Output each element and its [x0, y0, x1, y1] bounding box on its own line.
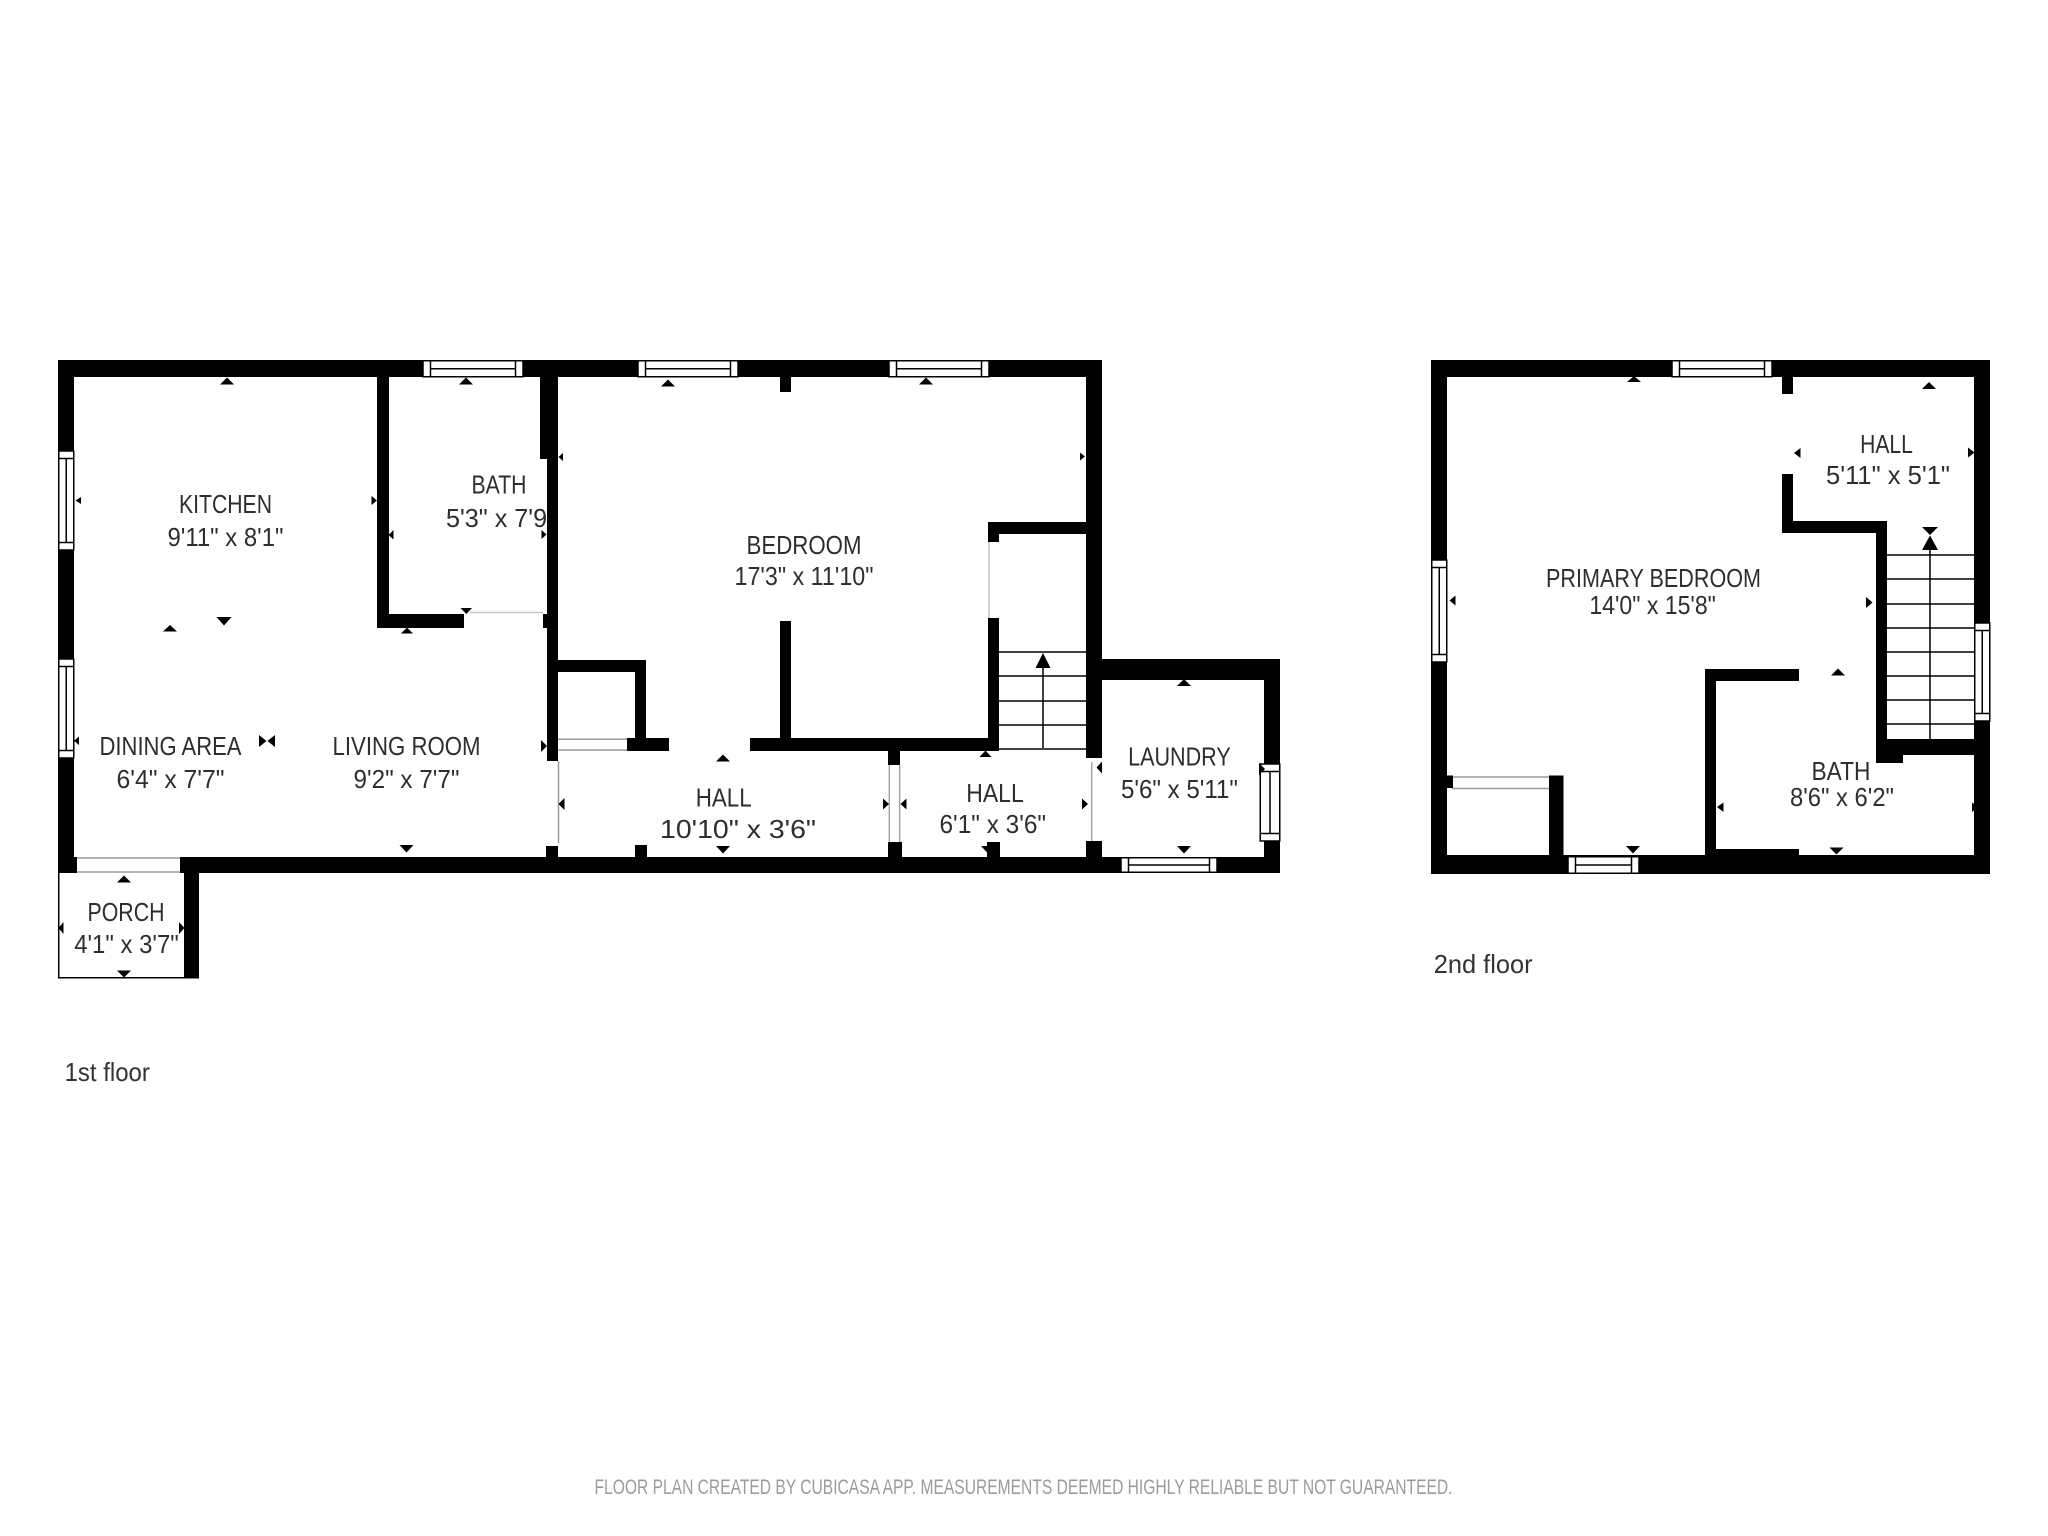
svg-text:10'10" x 3'6": 10'10" x 3'6": [660, 814, 816, 844]
svg-text:5'3" x 7'9": 5'3" x 7'9": [446, 503, 556, 533]
svg-text:5'11" x 5'1": 5'11" x 5'1": [1826, 460, 1950, 490]
svg-text:FLOOR PLAN CREATED BY CUBICASA: FLOOR PLAN CREATED BY CUBICASA APP. MEAS…: [595, 1476, 1453, 1499]
svg-text:2nd floor: 2nd floor: [1434, 949, 1533, 979]
svg-text:LAUNDRY: LAUNDRY: [1128, 742, 1231, 772]
svg-text:PRIMARY BEDROOM: PRIMARY BEDROOM: [1546, 563, 1761, 593]
svg-text:DINING AREA: DINING AREA: [100, 731, 243, 761]
svg-text:6'1" x 3'6": 6'1" x 3'6": [940, 809, 1047, 839]
svg-text:9'2" x 7'7": 9'2" x 7'7": [354, 764, 460, 794]
svg-text:LIVING ROOM: LIVING ROOM: [333, 731, 481, 761]
svg-text:5'6" x 5'11": 5'6" x 5'11": [1121, 774, 1238, 804]
svg-text:PORCH: PORCH: [88, 897, 165, 927]
svg-text:BEDROOM: BEDROOM: [747, 530, 862, 560]
svg-text:BATH: BATH: [472, 470, 527, 500]
svg-text:4'1" x 3'7": 4'1" x 3'7": [74, 929, 179, 959]
svg-text:6'4" x 7'7": 6'4" x 7'7": [117, 764, 225, 794]
svg-text:8'6" x 6'2": 8'6" x 6'2": [1790, 782, 1894, 812]
svg-text:HALL: HALL: [696, 783, 752, 813]
svg-text:9'11" x 8'1": 9'11" x 8'1": [168, 522, 284, 552]
svg-text:HALL: HALL: [966, 778, 1024, 808]
svg-text:HALL: HALL: [1860, 429, 1913, 459]
svg-text:17'3" x 11'10": 17'3" x 11'10": [735, 561, 874, 591]
svg-text:14'0" x 15'8": 14'0" x 15'8": [1589, 590, 1716, 620]
svg-text:1st floor: 1st floor: [65, 1057, 151, 1087]
svg-text:KITCHEN: KITCHEN: [179, 489, 272, 519]
